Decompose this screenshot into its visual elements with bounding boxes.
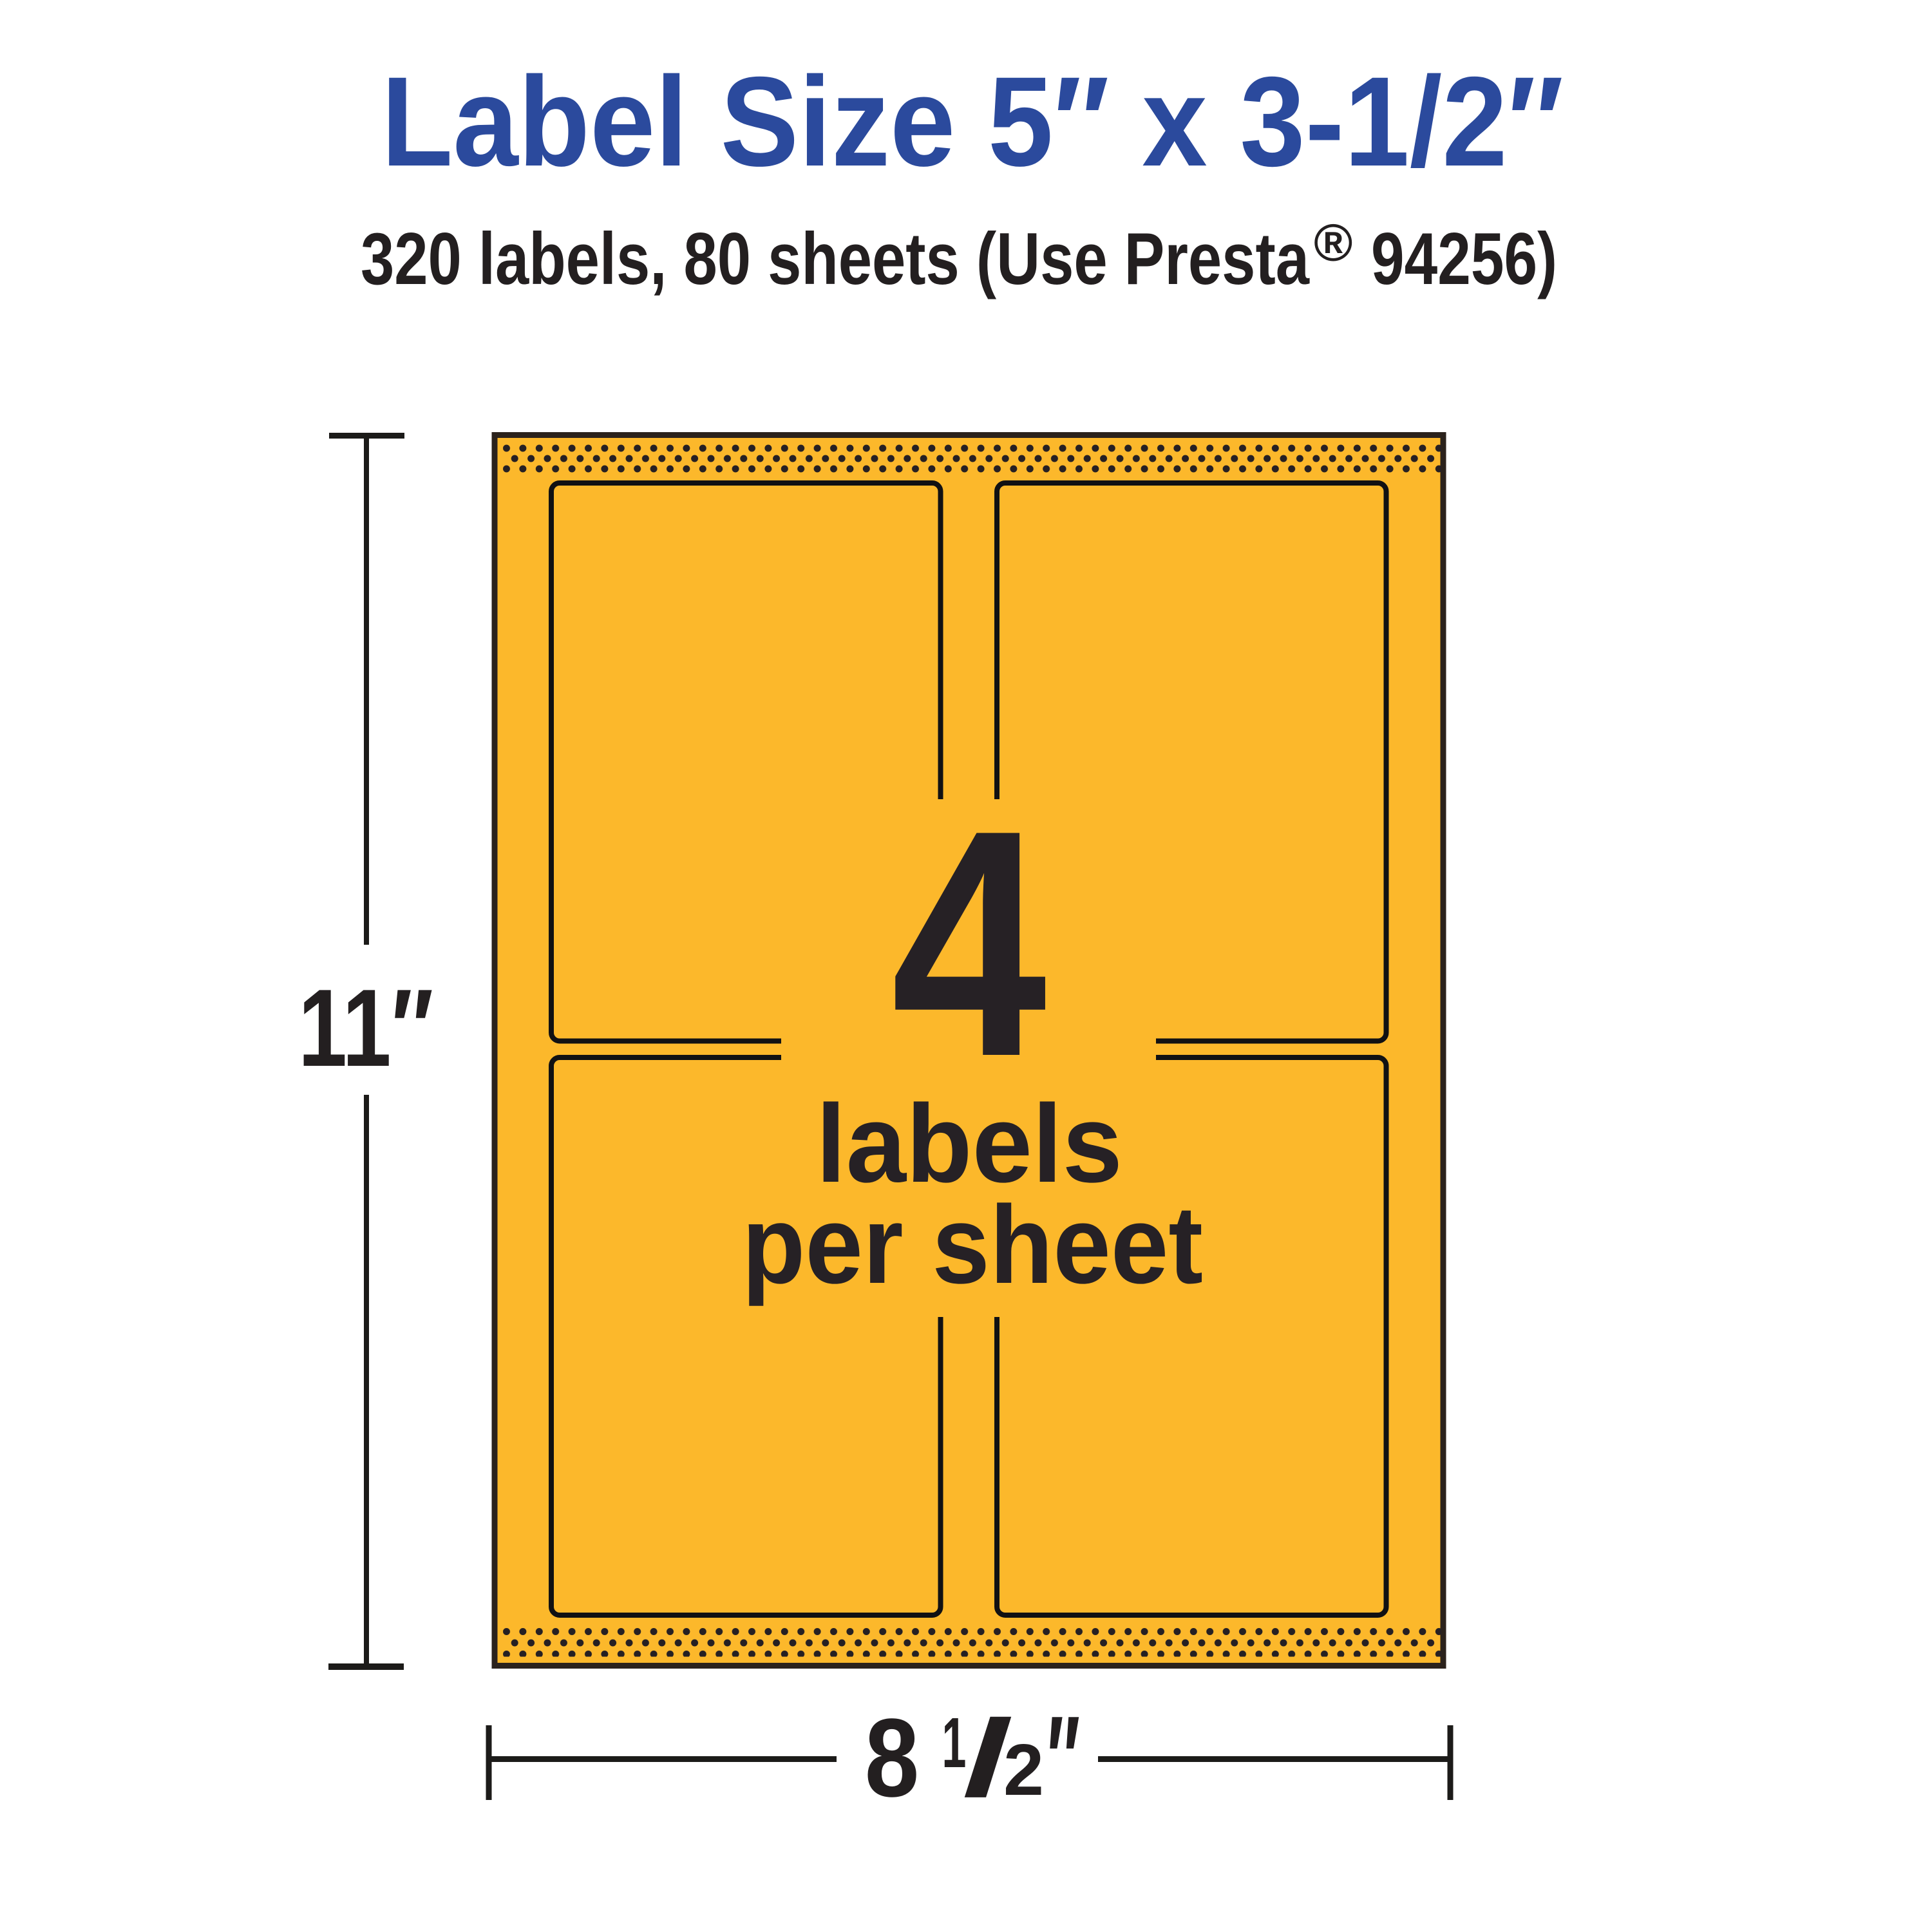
svg-text:11″: 11″ (298, 967, 433, 1090)
svg-text:″: ″ (1047, 1691, 1080, 1830)
svg-text:®: ® (1314, 214, 1352, 272)
svg-text:320 labels, 80 sheets (Use Pre: 320 labels, 80 sheets (Use Presta (361, 218, 1310, 300)
svg-text:2: 2 (1003, 1729, 1044, 1810)
svg-text:4: 4 (891, 764, 1048, 1124)
svg-text:Label Size 5″ x 3-1/2″: Label Size 5″ x 3-1/2″ (381, 50, 1564, 193)
svg-text:per sheet: per sheet (742, 1183, 1203, 1307)
svg-text:8: 8 (865, 1695, 920, 1820)
svg-text:94256): 94256) (1371, 218, 1557, 300)
